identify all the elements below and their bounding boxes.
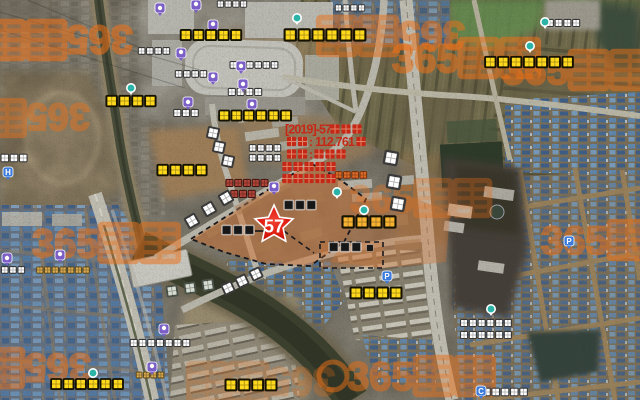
svg-text:365: 365 [27,95,90,137]
svg-text:365: 365 [32,222,99,266]
svg-text:365: 365 [392,37,459,81]
svg-text:112.761: 112.761 [315,135,355,149]
svg-text::: : [309,148,313,162]
svg-text:365: 365 [268,359,335,400]
svg-text:P: P [566,237,572,246]
svg-text:H: H [5,168,11,177]
svg-text:57: 57 [264,216,285,237]
svg-text:C: C [478,387,484,396]
svg-text:365: 365 [347,355,414,399]
svg-text:365: 365 [502,49,569,93]
svg-text:365: 365 [66,17,133,61]
svg-text:P: P [384,272,390,281]
